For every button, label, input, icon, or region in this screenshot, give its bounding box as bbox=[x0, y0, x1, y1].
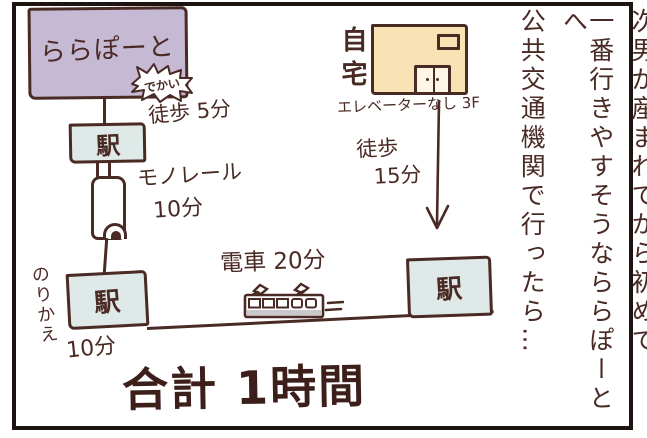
total-label: 合計 1時間 bbox=[121, 350, 366, 420]
connector-line bbox=[103, 98, 106, 125]
home-building bbox=[371, 24, 468, 95]
arrow-down-icon bbox=[424, 100, 456, 242]
station-label-2: 駅 bbox=[93, 280, 122, 319]
station-box-1: 駅 bbox=[69, 122, 147, 163]
walk15-label: 徒歩 15分 bbox=[356, 132, 423, 192]
monorail-duration-label: 10分 bbox=[152, 189, 204, 224]
home-label: 自宅 bbox=[334, 26, 371, 94]
station-box-3: 駅 bbox=[406, 256, 493, 319]
home-door-icon bbox=[414, 65, 451, 95]
walk15-duration-label: 15分 bbox=[373, 161, 422, 192]
narration-line-3: 公共交通機関で行ったら… bbox=[518, 8, 544, 356]
monorail-window-icon bbox=[103, 223, 127, 239]
train-icon bbox=[238, 280, 344, 326]
narration-line-1: 次男が産まれてから初めて bbox=[629, 8, 647, 356]
narration-text: 公共交通機関で行ったら… 一番行きやすそうなららぽーとへ 次男が産まれてから初め… bbox=[518, 8, 647, 432]
narration-line-2: 一番行きやすそうなららぽーとへ bbox=[560, 8, 613, 432]
station-label-1: 駅 bbox=[95, 125, 121, 161]
comic-panel: ららぽーと でかい 徒歩 5分 駅 モノレール 10分 のりかえ 駅 10分 bbox=[0, 0, 647, 438]
speed-lines-icon bbox=[326, 302, 343, 310]
transfer-duration-label: 10分 bbox=[64, 327, 117, 364]
monorail-icon bbox=[91, 176, 126, 240]
train-label: 電車 20分 bbox=[219, 240, 326, 278]
station-label-3: 駅 bbox=[435, 268, 464, 307]
home-window-icon bbox=[437, 34, 460, 50]
station-box-2: 駅 bbox=[66, 270, 150, 330]
